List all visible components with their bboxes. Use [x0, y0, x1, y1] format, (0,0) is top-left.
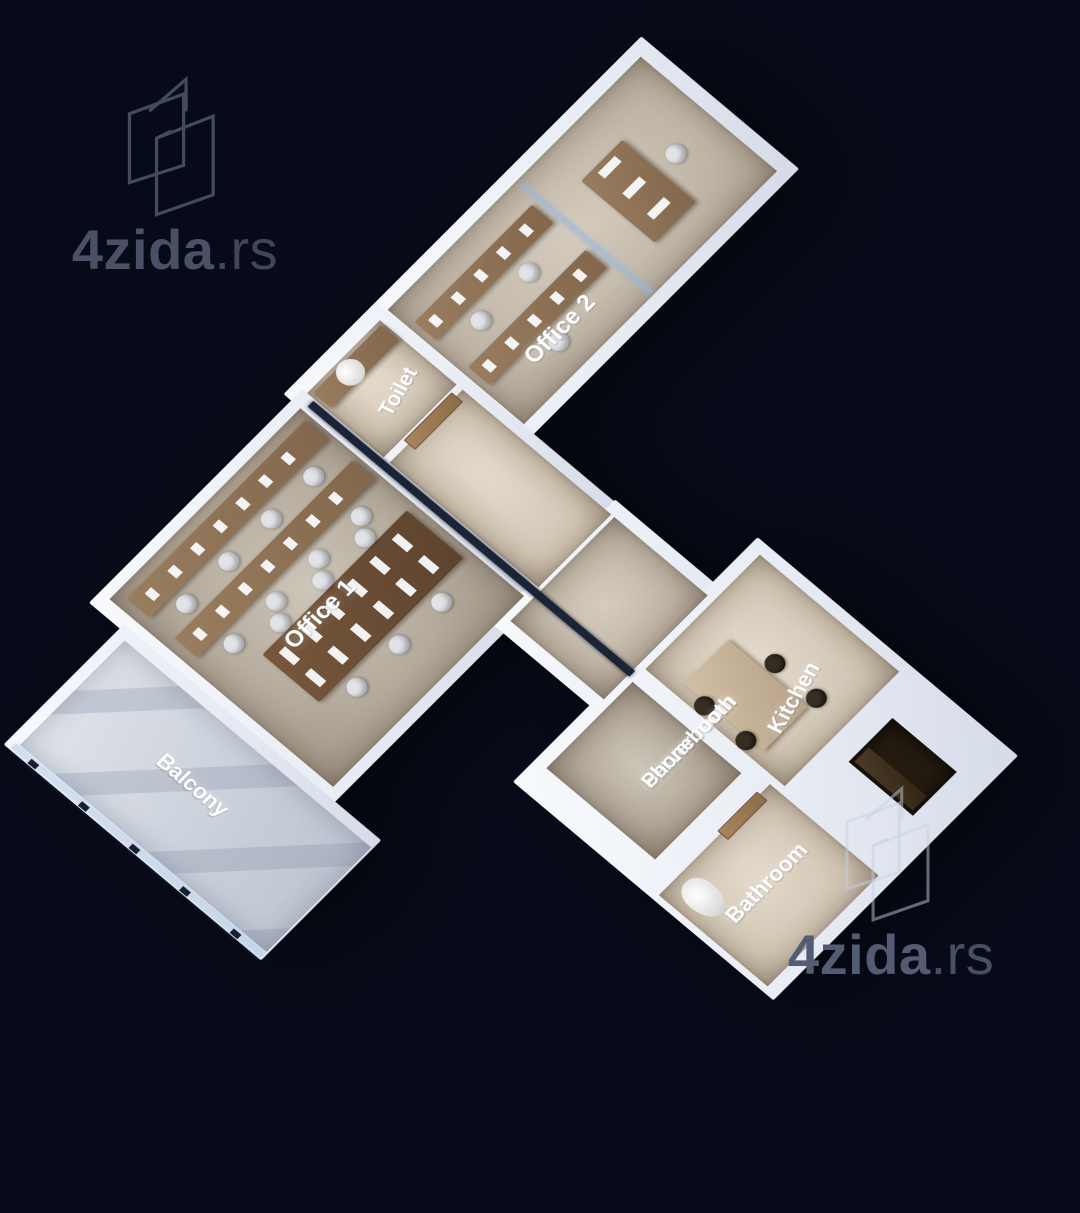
4zida-logo-icon	[791, 772, 991, 927]
watermark-top-left: 4zida.rs	[70, 62, 280, 278]
watermark-brand-text: 4zida	[72, 218, 215, 281]
watermark-tld-text: .rs	[931, 923, 995, 986]
4zida-logo-icon	[70, 62, 280, 222]
watermark-wordmark: 4zida.rs	[788, 927, 994, 983]
screenshot-canvas: { "background": "#070b19", "watermark": …	[0, 0, 1080, 1080]
watermark-wordmark: 4zida.rs	[72, 222, 278, 278]
watermark-tld-text: .rs	[214, 218, 278, 281]
watermark-brand-text: 4zida	[788, 923, 931, 986]
watermark-bottom-right: 4zida.rs	[788, 772, 994, 983]
